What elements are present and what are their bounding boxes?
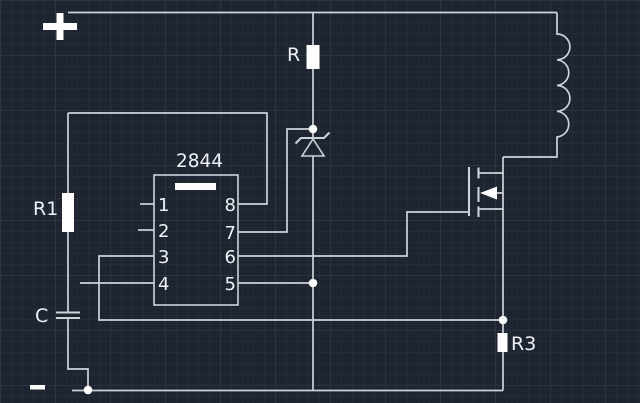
ic-pin-4-label: 4 (158, 274, 169, 295)
negative-terminal[interactable]: − (30, 385, 45, 390)
wires (68, 13, 570, 391)
ic-notch-bar (175, 183, 216, 190)
resistor-r-label: R (287, 44, 300, 66)
wire-pin7-to-zener-node[interactable] (238, 129, 313, 232)
wire-pin8-feedback-loop[interactable] (68, 113, 267, 204)
ic-pin-7-label: 7 (225, 223, 236, 244)
junction-dot (309, 125, 318, 134)
ic-pin-1-label: 1 (158, 195, 169, 216)
resistor-r3[interactable]: R3 (498, 333, 537, 355)
resistor-r3-body (498, 333, 508, 352)
mosfet-transistor[interactable] (469, 167, 503, 217)
resistor-r1-label: R1 (33, 198, 58, 220)
resistor-r3-label: R3 (511, 333, 536, 355)
minus-icon (30, 385, 45, 390)
wire-c-to-ground-jog[interactable] (68, 319, 88, 391)
ic-pin-6-label: 6 (225, 247, 236, 268)
wire-inductor-and-drain-link[interactable] (503, 13, 570, 158)
wire-pin6-to-gate[interactable] (238, 212, 469, 256)
ic-2844[interactable]: 2844 1 2 3 4 8 7 6 5 (154, 151, 238, 305)
positive-terminal[interactable]: + (43, 13, 77, 40)
plus-icon (57, 13, 64, 40)
schematic: + − R 2844 1 2 3 4 8 7 6 5 R1 C (0, 0, 640, 403)
drawing-canvas[interactable]: + − R 2844 1 2 3 4 8 7 6 5 R1 C (0, 0, 640, 403)
junction-dot (309, 279, 318, 288)
mosfet-body-arrow-icon (480, 187, 497, 200)
capacitor-c[interactable]: C (35, 305, 80, 327)
junction-dot (499, 316, 508, 325)
ic-pin-5-label: 5 (225, 274, 236, 295)
resistor-r-body (307, 45, 320, 69)
junction-dots (84, 125, 508, 395)
resistor-r1[interactable]: R1 (33, 193, 74, 232)
ic-pin-3-label: 3 (158, 247, 169, 268)
resistor-r[interactable]: R (287, 44, 320, 69)
ic-part-number: 2844 (176, 151, 223, 172)
zener-anode-triangle (302, 139, 324, 156)
capacitor-c-label: C (35, 305, 48, 327)
resistor-r1-body (62, 193, 74, 232)
ic-pin-2-label: 2 (158, 221, 169, 242)
junction-dot (84, 386, 93, 395)
ic-pin-8-label: 8 (225, 195, 236, 216)
